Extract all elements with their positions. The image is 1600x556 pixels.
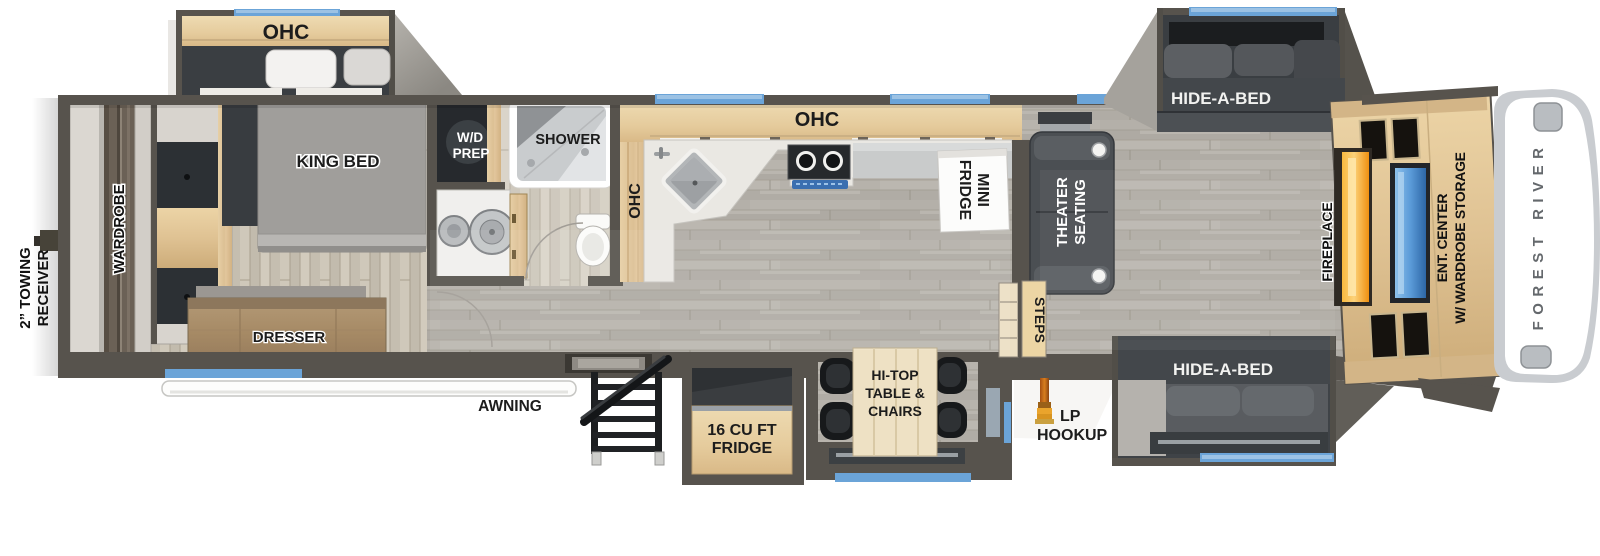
svg-text:WARDROBE: WARDROBE: [111, 184, 128, 273]
svg-text:TABLE &: TABLE &: [865, 385, 925, 401]
svg-text:CHAIRS: CHAIRS: [868, 403, 922, 419]
svg-text:MINI: MINI: [974, 173, 991, 207]
svg-text:16 CU FT: 16 CU FT: [707, 422, 777, 439]
svg-text:W/ WARDROBE STORAGE: W/ WARDROBE STORAGE: [1452, 152, 1468, 323]
svg-text:SEATING: SEATING: [1072, 179, 1089, 245]
svg-text:FIREPLACE: FIREPLACE: [1319, 202, 1335, 281]
svg-text:HOOKUP: HOOKUP: [1037, 427, 1108, 444]
svg-text:THEATER: THEATER: [1054, 177, 1071, 247]
svg-text:DRESSER: DRESSER: [253, 329, 326, 346]
svg-text:FOREST RIVER: FOREST RIVER: [1530, 142, 1547, 331]
svg-text:STEPS: STEPS: [1032, 297, 1048, 343]
svg-text:LP: LP: [1060, 408, 1081, 425]
svg-text:FRIDGE: FRIDGE: [956, 160, 973, 221]
svg-text:OHC: OHC: [795, 109, 839, 131]
svg-text:HI-TOP: HI-TOP: [871, 367, 918, 383]
svg-text:ENT. CENTER: ENT. CENTER: [1434, 194, 1450, 283]
svg-text:HIDE-A-BED: HIDE-A-BED: [1171, 89, 1271, 108]
svg-text:SHOWER: SHOWER: [535, 132, 601, 148]
svg-text:2” TOWING: 2” TOWING: [17, 247, 34, 328]
svg-text:RECEIVER: RECEIVER: [35, 249, 52, 326]
svg-text:OHC: OHC: [263, 21, 310, 44]
svg-text:HIDE-A-BED: HIDE-A-BED: [1173, 360, 1273, 379]
svg-text:AWNING: AWNING: [478, 398, 542, 415]
svg-text:OHC: OHC: [627, 183, 644, 219]
svg-text:FRIDGE: FRIDGE: [712, 440, 773, 457]
svg-text:KING BED: KING BED: [296, 152, 379, 171]
svg-text:W/D: W/D: [457, 130, 483, 145]
svg-text:PREP: PREP: [453, 146, 490, 161]
